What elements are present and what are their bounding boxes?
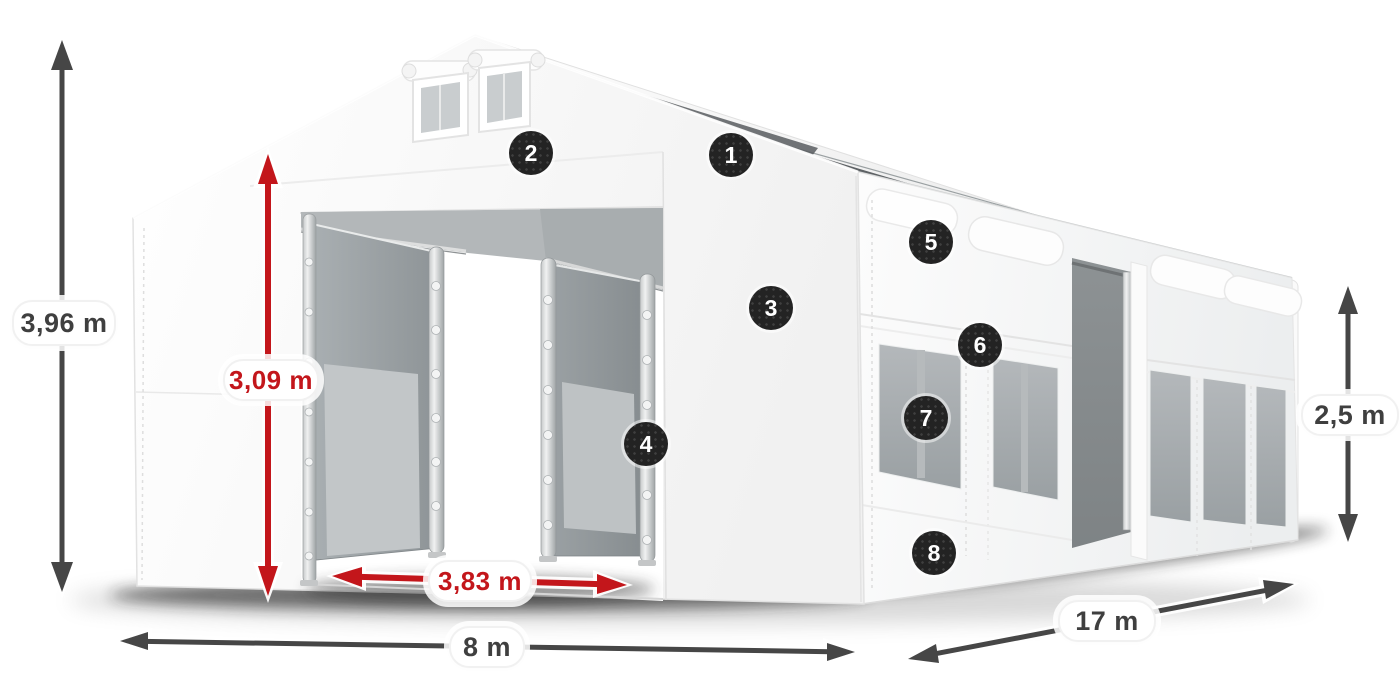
tent-illustration xyxy=(0,0,1400,700)
callout-badge-7[interactable]: 7 xyxy=(904,396,948,440)
callout-badge-1[interactable]: 1 xyxy=(709,133,753,177)
callout-badge-8[interactable]: 8 xyxy=(912,531,956,575)
callout-badge-2[interactable]: 2 xyxy=(509,131,553,175)
dimension-label-total-height: 3,96 m xyxy=(12,300,116,346)
dimension-label-width: 8 m xyxy=(449,626,525,668)
right-door-window xyxy=(562,382,636,534)
dimension-label-entrance-width: 3,83 m xyxy=(428,560,532,602)
dimension-label-entrance-height: 3,09 m xyxy=(223,359,319,401)
callout-badge-5[interactable]: 5 xyxy=(909,220,953,264)
door-opening xyxy=(300,208,663,602)
side-pillar xyxy=(1131,262,1147,560)
callout-badge-4[interactable]: 4 xyxy=(624,422,668,466)
right-door-panel xyxy=(549,264,648,556)
product-diagram: 3,96 m 3,09 m 3,83 m 8 m 17 m 2,5 m 1 2 … xyxy=(0,0,1400,700)
left-door-window xyxy=(324,364,420,556)
dimension-label-side-height: 2,5 m xyxy=(1301,394,1399,436)
dimension-label-length: 17 m xyxy=(1058,600,1156,642)
callout-badge-6[interactable]: 6 xyxy=(958,323,1002,367)
left-door-panel xyxy=(312,224,438,560)
side-open-section xyxy=(1072,258,1133,548)
callout-badge-3[interactable]: 3 xyxy=(749,286,793,330)
side-windows-far xyxy=(1150,370,1286,527)
